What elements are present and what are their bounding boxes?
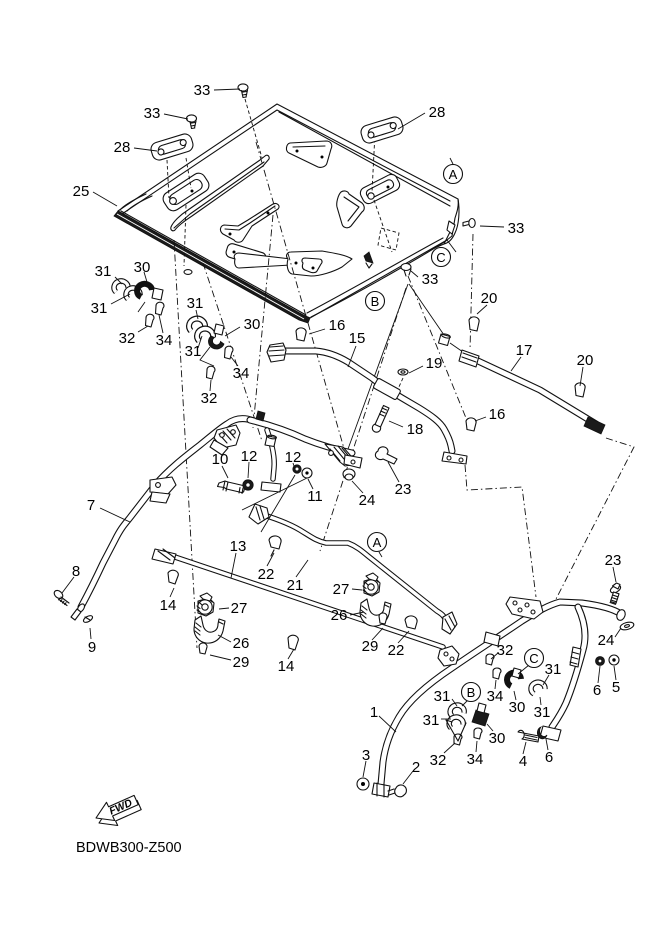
svg-text:B: B [467,685,476,700]
svg-text:12: 12 [241,448,258,465]
svg-text:A: A [373,535,382,550]
svg-text:14: 14 [160,597,177,614]
svg-text:31: 31 [95,263,112,280]
svg-text:19: 19 [426,355,443,372]
svg-text:29: 29 [362,638,379,655]
svg-text:A: A [449,167,458,182]
svg-text:31: 31 [534,704,551,721]
svg-text:13: 13 [230,538,247,555]
svg-text:31: 31 [187,295,204,312]
svg-text:31: 31 [434,688,451,705]
svg-text:30: 30 [489,730,506,747]
svg-text:9: 9 [88,639,96,656]
svg-text:33: 33 [194,82,211,99]
svg-text:32: 32 [201,390,218,407]
svg-text:6: 6 [545,749,553,766]
svg-text:32: 32 [497,642,514,659]
svg-text:BDWB300-Z500: BDWB300-Z500 [76,840,182,856]
svg-text:33: 33 [422,271,439,288]
svg-text:11: 11 [307,488,323,505]
svg-text:30: 30 [509,699,526,716]
svg-text:12: 12 [285,449,302,466]
svg-text:26: 26 [331,607,348,624]
svg-text:34: 34 [233,365,250,382]
svg-text:27: 27 [333,581,350,598]
svg-text:23: 23 [605,552,622,569]
svg-text:24: 24 [598,632,615,649]
svg-text:34: 34 [467,751,484,768]
svg-text:34: 34 [487,688,504,705]
svg-text:1: 1 [370,704,378,721]
svg-text:31: 31 [423,712,440,729]
svg-text:6: 6 [593,682,601,699]
svg-text:28: 28 [114,139,131,156]
svg-text:17: 17 [516,342,533,359]
svg-text:18: 18 [407,421,424,438]
svg-text:30: 30 [244,316,261,333]
svg-text:20: 20 [481,290,498,307]
svg-text:25: 25 [73,183,90,200]
svg-text:33: 33 [508,220,525,237]
svg-text:16: 16 [489,406,506,423]
svg-text:3: 3 [362,747,370,764]
svg-text:8: 8 [72,563,80,580]
svg-text:22: 22 [388,642,405,659]
svg-text:2: 2 [412,759,420,776]
svg-text:31: 31 [91,300,108,317]
svg-text:28: 28 [429,104,446,121]
svg-text:32: 32 [430,752,447,769]
svg-text:27: 27 [231,600,248,617]
svg-text:24: 24 [359,492,376,509]
svg-text:21: 21 [287,577,304,594]
svg-text:4: 4 [519,753,527,770]
svg-text:14: 14 [278,658,295,675]
svg-text:29: 29 [233,654,250,671]
svg-text:30: 30 [134,259,151,276]
svg-text:33: 33 [144,105,161,122]
svg-text:34: 34 [156,332,173,349]
svg-text:10: 10 [212,451,229,468]
svg-text:20: 20 [577,352,594,369]
svg-text:31: 31 [185,343,202,360]
svg-text:26: 26 [233,635,250,652]
svg-text:7: 7 [87,497,95,514]
svg-text:C: C [529,651,538,666]
svg-text:B: B [371,294,380,309]
svg-text:23: 23 [395,481,412,498]
svg-text:15: 15 [349,330,366,347]
svg-text:16: 16 [329,317,346,334]
svg-text:C: C [436,250,445,265]
svg-text:31: 31 [545,661,562,678]
svg-text:5: 5 [612,679,620,696]
svg-text:22: 22 [258,566,275,583]
svg-text:32: 32 [119,330,136,347]
